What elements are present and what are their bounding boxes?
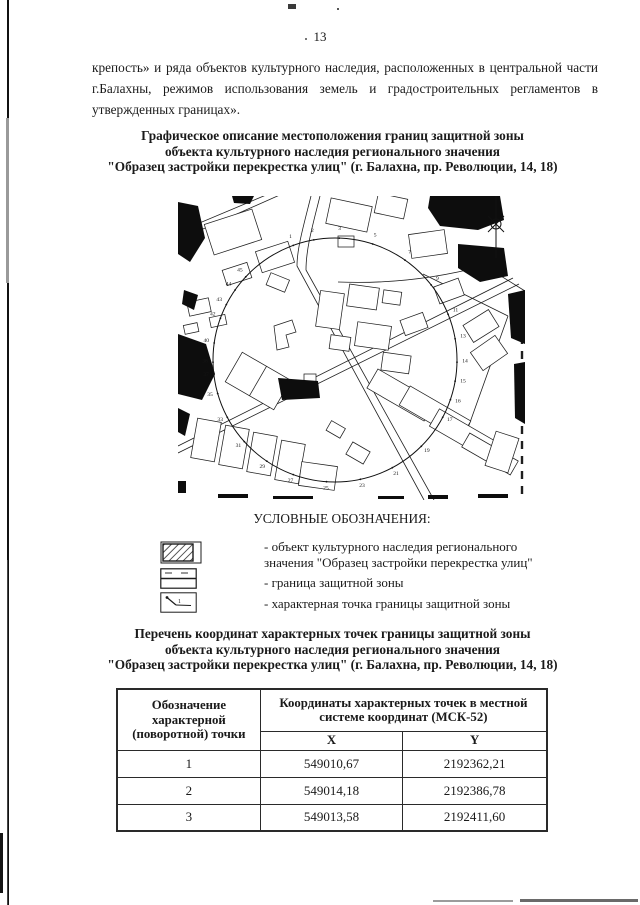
coordinates-table: Обозначение характерной (поворотной) точ… bbox=[116, 688, 548, 832]
svg-text:38: 38 bbox=[202, 358, 208, 364]
protective-zone-map: 1235791113141516171921232527293133353738… bbox=[178, 196, 525, 500]
table-header-x: X bbox=[260, 731, 402, 750]
svg-text:44: 44 bbox=[226, 281, 232, 287]
point-number: 2 bbox=[117, 777, 260, 804]
svg-text:7: 7 bbox=[408, 250, 411, 256]
scan-artifact-bottom-left bbox=[0, 833, 3, 893]
svg-text:25: 25 bbox=[323, 486, 329, 492]
scan-edge-line-lower bbox=[7, 560, 8, 905]
svg-text:33: 33 bbox=[217, 417, 223, 423]
map-buildings bbox=[183, 196, 519, 490]
table-row: 1 549010,67 2192362,21 bbox=[117, 750, 547, 777]
svg-text:37: 37 bbox=[203, 372, 209, 378]
svg-text:9: 9 bbox=[436, 276, 439, 282]
svg-text:16: 16 bbox=[455, 398, 461, 404]
svg-text:17: 17 bbox=[447, 417, 453, 423]
svg-text:40: 40 bbox=[204, 338, 210, 344]
table-header-coords: Координаты характерных точек в местной с… bbox=[260, 689, 547, 731]
svg-text:19: 19 bbox=[424, 448, 430, 454]
coords-caption-line-1: Перечень координат характерных точек гра… bbox=[60, 626, 605, 642]
svg-text:1: 1 bbox=[178, 599, 181, 605]
coords-table-caption: Перечень координат характерных точек гра… bbox=[60, 626, 605, 673]
legend-item-characteristic-point: - характерная точка границы защитной зон… bbox=[264, 596, 584, 612]
scan-artifact-bottom-right-2 bbox=[433, 900, 513, 902]
point-number: 3 bbox=[117, 804, 260, 831]
svg-text:15: 15 bbox=[460, 379, 466, 385]
svg-text:3: 3 bbox=[338, 226, 341, 232]
coordinate-x: 549014,18 bbox=[260, 777, 402, 804]
svg-text:23: 23 bbox=[359, 483, 365, 489]
coordinate-y: 2192362,21 bbox=[403, 750, 547, 777]
coords-caption-line-2: объекта культурного наследия регионально… bbox=[60, 642, 605, 658]
svg-text:13: 13 bbox=[460, 333, 466, 339]
svg-text:45: 45 bbox=[237, 267, 243, 273]
scan-edge-line-gray bbox=[6, 118, 9, 283]
page-number: 13 bbox=[0, 29, 640, 45]
svg-text:1: 1 bbox=[289, 234, 292, 240]
coords-caption-line-3: "Образец застройки перекрестка улиц" (г.… bbox=[60, 657, 605, 673]
svg-text:11: 11 bbox=[453, 307, 459, 313]
coordinate-x: 549010,67 bbox=[260, 750, 402, 777]
map-caption-line-1: Графическое описание местоположения гран… bbox=[60, 128, 605, 144]
svg-text:2: 2 bbox=[311, 228, 314, 234]
svg-text:14: 14 bbox=[462, 358, 468, 364]
svg-text:31: 31 bbox=[236, 443, 242, 449]
table-header-point: Обозначение характерной (поворотной) точ… bbox=[117, 689, 260, 750]
characteristic-point-symbol-icon: 1 bbox=[160, 592, 197, 618]
svg-text:27: 27 bbox=[288, 478, 294, 484]
heritage-object-symbol-icon bbox=[160, 541, 202, 570]
coordinate-y: 2192411,60 bbox=[403, 804, 547, 831]
svg-text:43: 43 bbox=[216, 297, 222, 303]
scan-artifact-bottom-right bbox=[520, 899, 638, 902]
coordinate-x: 549013,58 bbox=[260, 804, 402, 831]
map-caption-line-2: объекта культурного наследия регионально… bbox=[60, 144, 605, 160]
map-caption: Графическое описание местоположения гран… bbox=[60, 128, 605, 175]
svg-text:42: 42 bbox=[210, 312, 216, 318]
svg-text:29: 29 bbox=[260, 464, 266, 470]
legend-item-zone-boundary: - граница защитной зоны bbox=[264, 575, 574, 591]
svg-text:21: 21 bbox=[393, 471, 399, 477]
document-page: 13 крепость» и ряда объектов культурного… bbox=[0, 0, 640, 905]
table-header-y: Y bbox=[403, 731, 547, 750]
body-paragraph: крепость» и ряда объектов культурного на… bbox=[92, 57, 598, 120]
table-row: 2 549014,18 2192386,78 bbox=[117, 777, 547, 804]
legend-title: УСЛОВНЫЕ ОБОЗНАЧЕНИЯ: bbox=[80, 511, 604, 527]
scan-speck bbox=[337, 8, 339, 10]
scan-speck bbox=[288, 4, 296, 9]
legend-item-heritage-object: - объект культурного наследия региональн… bbox=[264, 539, 574, 570]
table-row: 3 549013,58 2192411,60 bbox=[117, 804, 547, 831]
map-image: 1235791113141516171921232527293133353738… bbox=[178, 196, 525, 500]
svg-text:35: 35 bbox=[207, 392, 213, 398]
point-number: 1 bbox=[117, 750, 260, 777]
coordinate-y: 2192386,78 bbox=[403, 777, 547, 804]
map-caption-line-3: "Образец застройки перекрестка улиц" (г.… bbox=[60, 159, 605, 175]
zone-boundary-symbol-icon bbox=[160, 568, 197, 594]
svg-text:5: 5 bbox=[374, 232, 377, 238]
